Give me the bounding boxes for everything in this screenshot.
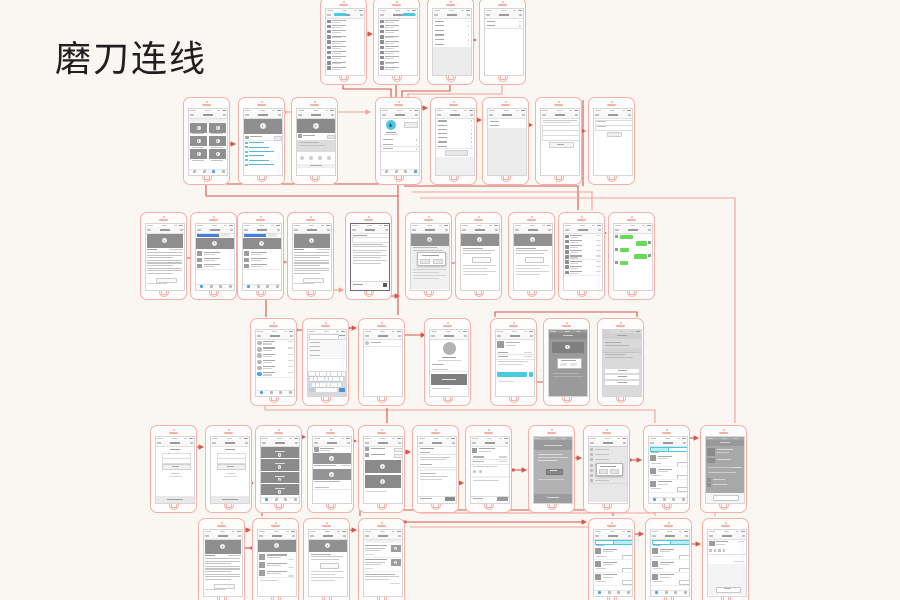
avatar [327,61,331,65]
wireframe-shape [309,225,314,226]
wireframe-shape [294,265,320,266]
menu-icon [290,335,293,337]
menu-icon [530,335,533,337]
wireframe-shape [420,457,450,458]
avatar [565,240,569,244]
phone-videogrid [183,97,230,185]
battery-icon [494,225,498,226]
wireframe-shape [288,559,294,560]
battery-icon [518,10,522,11]
wireframe-shape [658,456,672,457]
phone-feedblue [237,212,284,300]
battery-icon [276,225,280,226]
wireframe-shape [596,250,601,251]
wireframe-shape [147,283,167,284]
status-bar [565,225,571,226]
wireframe-shape [383,144,393,145]
status-bar [462,225,468,226]
wireframe-shape [332,69,341,70]
camera-dot [668,522,670,524]
wireframe-shape [331,474,332,476]
wireframe-shape [279,454,280,456]
status-bar [652,531,658,532]
wireframe-shape [384,134,398,135]
wireframe-shape [532,239,533,241]
wireframe-shape [597,121,606,122]
wireframe-shape [651,488,661,489]
battery-icon [463,331,467,332]
wireframe-shape [516,265,549,266]
speaker-slot [310,104,319,106]
wireframe-shape [596,245,601,246]
nav-title [499,14,509,16]
wireframe-shape [249,164,274,165]
wireframe-shape [677,438,680,439]
key [329,377,332,381]
wireframe-shape [385,32,394,33]
wireframe-shape [341,465,350,466]
wireframe-shape [471,476,510,478]
wireframe-shape [463,271,496,272]
menu-icon [415,114,418,116]
phone-screen [307,329,348,397]
key [312,372,315,376]
phone-ordertabs_r [645,518,692,600]
speaker-slot [721,525,730,527]
camera-dot [396,1,398,3]
wireframe-shape [222,546,223,548]
back-icon [542,114,546,116]
wireframe-shape [314,465,336,466]
status-bar [434,10,440,11]
back-icon [515,229,519,231]
wireframe-shape [315,125,316,127]
wireframe-shape [722,438,727,439]
wireframe-shape [720,442,730,443]
back-icon [595,535,599,537]
nav-title [257,229,267,231]
back-icon [615,229,619,231]
wireframe-shape [353,244,383,245]
phone-screen [188,108,229,176]
wireframe-shape [570,261,582,262]
confirm-button [445,497,455,502]
wireframe-shape [519,21,521,23]
back-icon [327,14,331,16]
wireframe-shape [385,48,394,49]
profile-avatar [443,342,456,355]
key [338,383,341,387]
wireframe-shape [267,557,281,558]
status-bar [535,438,541,439]
share-icon [300,156,304,160]
phone-screen [648,436,689,504]
wireframe-shape [365,579,389,580]
wireframe-shape [605,438,610,439]
phone-screen [257,529,298,597]
wireframe-shape [473,466,497,467]
wireframe-shape [567,346,568,348]
nav-title [502,114,512,116]
wireframe-shape [468,34,470,36]
speaker-slot [602,432,611,434]
wireframe-shape [224,225,227,226]
tab-icon [222,170,225,173]
wireframe-shape [427,225,432,226]
wireframe-shape [569,110,572,111]
wireframe-shape [651,475,661,476]
wireframe-shape [433,47,472,75]
wireframe-shape [420,452,430,453]
wireframe-shape [487,438,492,439]
battery-icon [636,331,640,332]
wireframe-shape [172,438,177,439]
key [331,383,334,387]
tab-icon [284,498,287,501]
wireframe-shape [371,454,385,455]
wireframe-shape [205,579,231,580]
status-bar [257,331,263,332]
wireframe-shape [667,531,672,532]
battery-icon [451,438,455,439]
back-icon [437,114,441,116]
wireframe-shape [211,160,223,161]
wireframe-shape [311,580,335,581]
wireframe-shape [310,355,320,356]
wireframe-shape [416,148,418,150]
menu-icon [398,535,401,537]
tab-icon [395,170,398,173]
wireframe-shape [367,225,372,226]
phone-darkpage [528,425,575,513]
wireframe-shape [170,249,183,250]
wireframe-shape [649,492,688,493]
wireframe-shape [422,255,439,256]
status-bar [309,331,315,332]
back-icon [434,14,438,16]
speaker-slot [627,219,636,221]
wireframe-shape [211,133,223,134]
camera-dot [314,101,316,103]
key [342,372,345,376]
wireframe-shape [660,564,670,565]
wireframe-shape [380,531,385,532]
camera-dot [381,522,383,524]
wireframe-shape [570,250,582,251]
nav-title [378,335,388,337]
wireframe-shape [224,476,237,477]
wireframe-shape [353,260,387,261]
wireframe-shape [499,461,507,462]
battery-icon [547,225,551,226]
menu-icon [464,335,467,337]
wireframe-shape [299,142,319,143]
wireframe-shape [337,531,340,532]
order-thumb [650,455,656,461]
nav-title [311,114,321,116]
menu-icon [467,14,470,16]
wireframe-shape [512,331,517,332]
back-icon [590,442,594,444]
battery-icon [294,438,298,439]
avatar [380,20,384,24]
wireframe-shape [660,549,674,550]
wireframe-shape [516,274,540,275]
order-thumb [652,561,658,567]
thumb [244,264,249,269]
battery-icon [469,110,473,111]
phone-screen [602,329,643,397]
battery-icon [521,110,525,111]
phone-orderdetail [465,425,512,513]
wireframe-shape [596,271,601,272]
back-icon [294,229,298,231]
wireframe-shape [473,470,476,473]
back-icon [244,229,248,231]
wireframe-shape [204,260,215,261]
wireframe-shape [353,257,381,258]
wireframe-shape [605,357,633,358]
wireframe-shape [413,275,446,276]
phone-screen [613,223,654,291]
phone-screen [260,436,301,504]
wireframe-shape [442,379,456,380]
nav-title [485,442,495,444]
status-bar [294,225,300,226]
wireframe-shape [708,472,736,473]
wireframe-shape [260,580,278,581]
wireframe-shape [365,550,381,551]
battery-icon [574,110,578,111]
tab-icon [655,591,658,594]
wireframe-shape [192,147,204,148]
thumb [244,251,249,256]
wireframe-shape [366,491,386,492]
nav-title [447,14,457,16]
speaker-slot [443,325,452,327]
wireframe-shape [416,144,418,146]
wireframe-shape [435,39,444,40]
avatar [257,372,262,377]
camera-dot [631,216,633,218]
wireframe-shape [570,271,582,272]
status-bar [365,331,371,332]
connector [495,312,637,317]
wireframe-shape [603,551,613,552]
thumb [197,258,202,263]
wireframe-shape [438,146,447,147]
wireframe-shape [530,225,535,226]
avatar [380,56,384,60]
back-icon [245,114,249,116]
wireframe-shape [380,331,385,332]
camera-dot [213,216,215,218]
wireframe-shape [468,21,470,23]
wireframe-shape [438,125,447,126]
camera-dot [723,429,725,431]
wireframe-shape [288,347,293,348]
wireframe-shape [622,110,625,111]
nav-title [393,14,403,16]
battery-icon [237,531,241,532]
status-bar [615,225,621,226]
wireframe-shape [251,254,262,255]
wireframe-shape [570,268,578,269]
phone-screen [145,223,186,291]
nav-title [475,229,485,231]
wireframe-shape [294,283,314,284]
status-bar [298,110,304,111]
back-icon [650,442,654,444]
modal-cancel-button [420,259,430,264]
wireframe-shape [198,140,199,142]
speaker-slot [498,4,507,6]
phone-login [205,425,252,513]
phone-screen [363,529,404,597]
phone-searchkb [302,318,349,406]
avatar [380,46,384,50]
wireframe-shape [263,343,272,344]
order-thumb [652,548,658,554]
wireframe-shape [446,331,451,332]
camera-dot [428,216,430,218]
mini-button [394,448,403,453]
wireframe-shape [524,356,532,357]
wireframe-shape [332,27,341,28]
back-icon [486,14,490,16]
order-thumb [650,468,656,474]
menu-icon [292,535,295,537]
menu-icon [470,114,473,116]
wireframe-shape [471,146,473,148]
wireframe-shape [310,342,320,343]
wireframe-shape [267,554,287,555]
speaker-slot [719,432,728,434]
tab-icon [257,285,260,288]
wireframe-shape [331,458,332,460]
wireframe-shape [653,556,663,557]
wireframe-shape [570,363,577,366]
phone-screen [563,223,604,291]
wireframe-shape [452,110,457,111]
phone-screen [363,329,404,397]
small-button [607,132,622,138]
wireframe-shape [561,360,576,361]
wireframe-shape [204,254,215,255]
avatar [327,30,331,34]
status-bar [147,225,153,226]
icon [718,549,721,552]
menu-icon [742,535,745,537]
tab-segment-right [668,447,688,453]
wireframe-shape [272,331,277,332]
wireframe-shape [249,147,269,148]
action-button [320,563,339,569]
status-bar [550,331,556,332]
phone-ordertabs_r [588,518,635,600]
wireframe-shape [232,531,235,532]
speaker-slot [339,4,348,6]
wireframe-shape [713,479,725,480]
avatar [327,20,331,24]
speaker-slot [377,432,386,434]
wireframe-shape [438,120,447,121]
back-icon [565,229,569,231]
more-button [156,278,177,283]
login-field [162,458,191,464]
wireframe-shape [284,331,287,332]
camera-dot [513,322,515,324]
phone-videomodal [405,212,452,300]
wireframe-shape [279,466,280,468]
menu-icon [245,442,248,444]
wireframe-shape [498,381,514,382]
battery-icon [229,225,233,226]
tab-icon [210,285,213,288]
nav-title [218,535,228,537]
speaker-slot [217,525,226,527]
tab-segment-active [244,234,266,237]
menu-icon [495,229,498,231]
wireframe-shape [299,145,325,146]
wireframe-shape [327,545,328,547]
status-bar [590,438,596,439]
nav-title [425,229,435,231]
status-bar [707,438,713,439]
phone-screen [243,108,284,176]
key [316,383,319,387]
share-icon [327,156,331,160]
wireframe-shape [365,559,387,560]
wireframe-shape [147,273,173,274]
key [340,377,343,381]
phone-article [140,212,187,300]
wireframe-shape [432,388,450,389]
menu-icon [327,229,330,231]
wireframe-shape [463,268,487,269]
wireframe-shape [516,271,549,272]
phone-form3 [588,97,635,185]
wireframe-shape [251,258,267,259]
wireframe-shape [490,125,499,126]
wireframe-shape [315,487,329,488]
wireframe-shape [479,470,482,473]
wireframe-shape [379,225,382,226]
wireframe-shape [435,25,444,26]
phone-videodetail [238,97,285,185]
tab-icon [674,591,677,594]
tab-icon [289,391,292,394]
status-bar [212,438,218,439]
wireframe-shape [499,438,502,439]
space-key [316,388,337,392]
nav-title [160,229,170,231]
wireframe-shape [473,456,484,457]
camera-dot [450,1,452,3]
status-bar [412,225,418,226]
wireframe-shape [251,252,267,253]
wireframe-shape [365,564,381,565]
wireframe-shape [385,58,394,59]
wireframe-shape [386,132,396,133]
speaker-slot [326,432,335,434]
page-title: 磨刀连线 [55,30,207,82]
icon [723,549,726,552]
action-button [445,150,468,156]
wireframe-shape [420,464,432,465]
wireframe-shape [263,362,272,363]
wireframe-shape [267,563,287,564]
